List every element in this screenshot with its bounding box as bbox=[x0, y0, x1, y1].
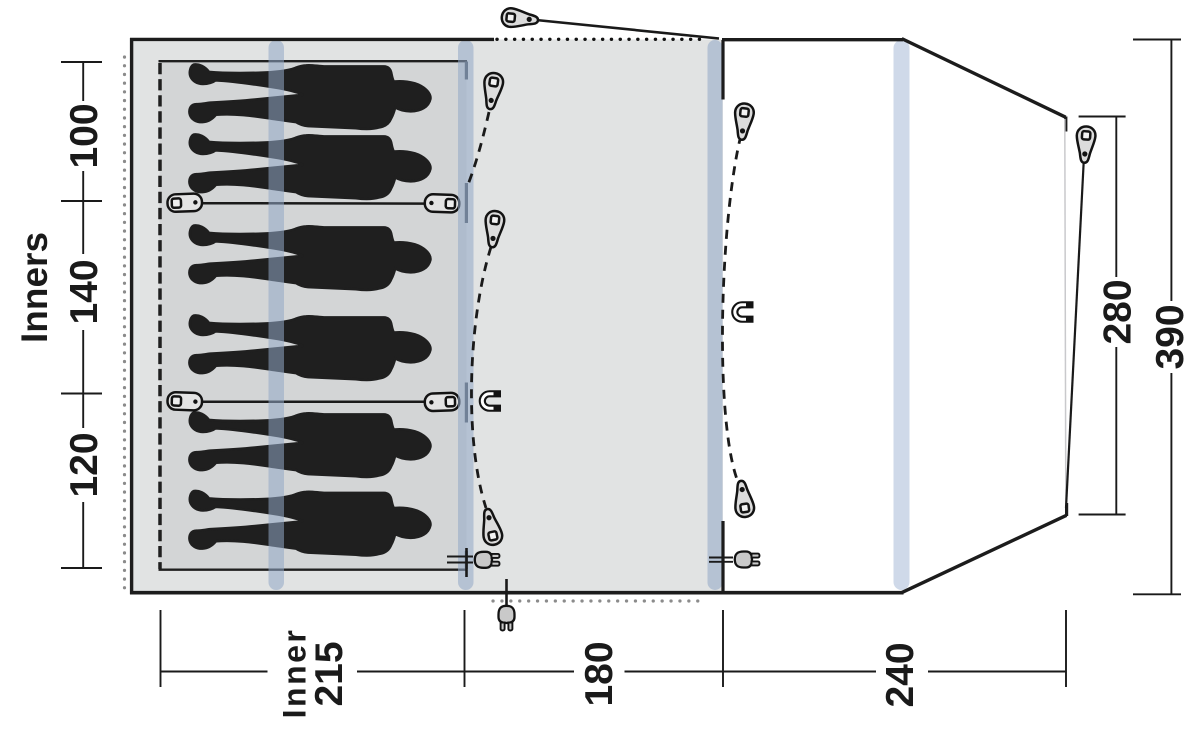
svg-text:180: 180 bbox=[578, 641, 621, 706]
svg-text:280: 280 bbox=[1096, 279, 1139, 344]
svg-text:215: 215 bbox=[308, 641, 351, 706]
svg-text:240: 240 bbox=[879, 642, 922, 707]
svg-text:390: 390 bbox=[1149, 304, 1192, 369]
svg-text:120: 120 bbox=[63, 432, 106, 497]
svg-text:100: 100 bbox=[63, 103, 106, 168]
svg-text:140: 140 bbox=[63, 259, 106, 324]
svg-text:Inners: Inners bbox=[14, 232, 55, 343]
